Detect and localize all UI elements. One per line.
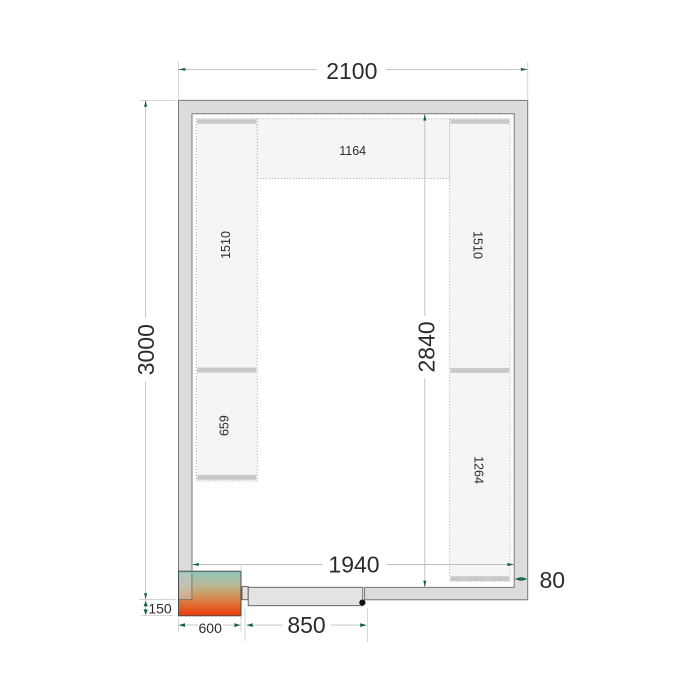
svg-text:1510: 1510 xyxy=(471,231,485,259)
svg-text:80: 80 xyxy=(540,567,566,593)
svg-text:659: 659 xyxy=(218,415,232,436)
svg-text:850: 850 xyxy=(287,612,325,638)
svg-text:1940: 1940 xyxy=(328,552,379,578)
svg-text:3000: 3000 xyxy=(133,324,159,375)
svg-text:150: 150 xyxy=(148,600,172,616)
svg-text:1164: 1164 xyxy=(339,144,366,158)
svg-text:1510: 1510 xyxy=(219,231,233,259)
svg-text:600: 600 xyxy=(199,620,223,636)
svg-text:2100: 2100 xyxy=(326,58,377,84)
svg-text:2840: 2840 xyxy=(414,321,440,372)
svg-text:1264: 1264 xyxy=(471,456,485,484)
